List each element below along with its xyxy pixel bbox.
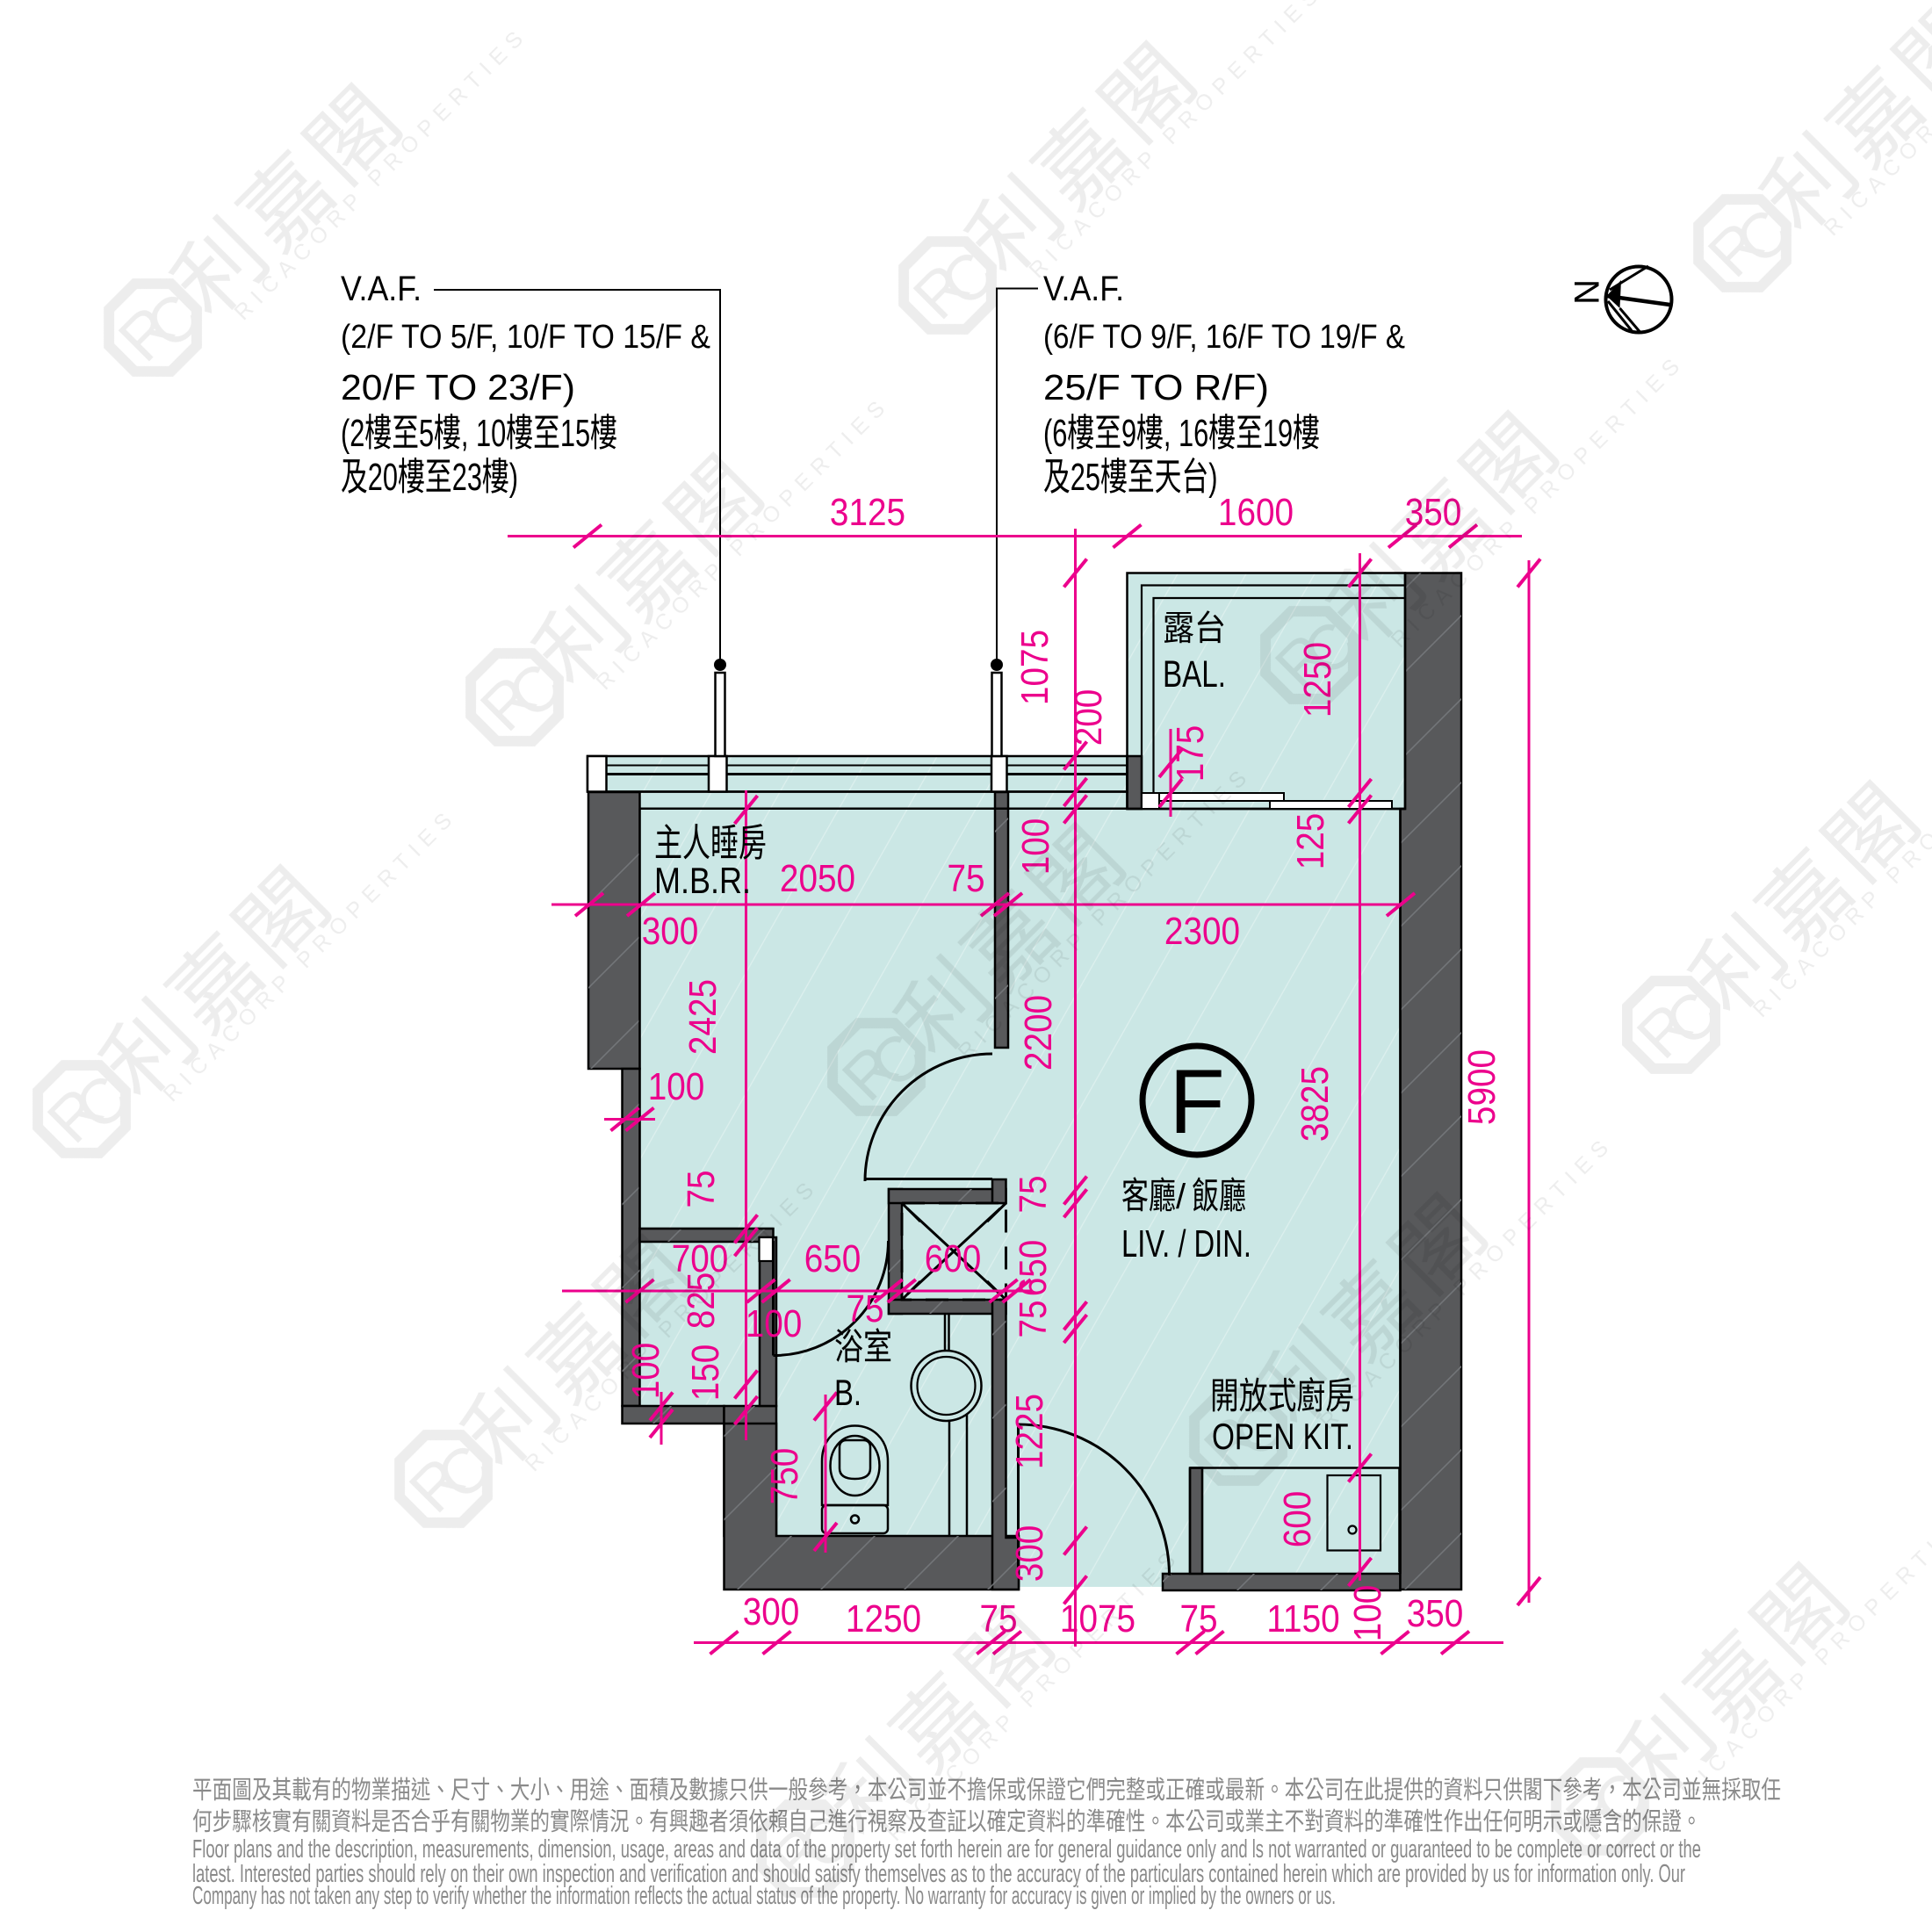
svg-text:, 16: , 16: [1164, 413, 1208, 456]
svg-text:100: 100: [746, 1301, 803, 1345]
svg-text:1225: 1225: [1007, 1394, 1051, 1469]
svg-text:3825: 3825: [1293, 1066, 1337, 1142]
svg-text:350: 350: [1407, 1591, 1464, 1635]
svg-text:100: 100: [648, 1064, 705, 1108]
svg-text:1150: 1150: [1266, 1597, 1339, 1640]
svg-text:F: F: [1169, 1051, 1225, 1153]
svg-text:20: 20: [368, 457, 398, 500]
svg-text:75: 75: [846, 1287, 883, 1330]
svg-text:175: 175: [1168, 725, 1212, 782]
svg-text:25/F TO R/F): 25/F TO R/F): [1043, 367, 1269, 407]
svg-text:1250: 1250: [846, 1597, 921, 1640]
svg-text:V.A.F.: V.A.F.: [341, 270, 422, 308]
svg-text:650: 650: [1011, 1240, 1055, 1297]
svg-text:1600: 1600: [1218, 490, 1294, 534]
svg-text:600: 600: [925, 1236, 982, 1280]
svg-text:2425: 2425: [681, 979, 724, 1055]
svg-text:650: 650: [804, 1236, 861, 1280]
svg-text:5900: 5900: [1460, 1049, 1503, 1125]
svg-text:/: /: [1176, 1178, 1186, 1216]
svg-text:300: 300: [743, 1590, 800, 1633]
svg-text:1075: 1075: [1013, 630, 1056, 705]
svg-text:75: 75: [679, 1170, 723, 1207]
svg-text:23: 23: [452, 457, 482, 500]
svg-text:150: 150: [683, 1344, 727, 1402]
svg-text:2300: 2300: [1164, 909, 1240, 953]
svg-text:300: 300: [642, 909, 699, 953]
svg-text:3125: 3125: [830, 490, 905, 534]
svg-text:2050: 2050: [780, 856, 855, 900]
svg-text:M.B.R.: M.B.R.: [654, 860, 751, 901]
svg-text:75: 75: [1011, 1300, 1055, 1337]
svg-text:(2/F TO 5/F, 10/F TO 15/F &: (2/F TO 5/F, 10/F TO 15/F &: [341, 319, 710, 356]
svg-text:): ): [1208, 457, 1217, 500]
svg-text:75: 75: [1011, 1175, 1055, 1213]
svg-text:20/F TO 23/F): 20/F TO 23/F): [341, 367, 575, 407]
svg-text:Company has not taken any step: Company has not taken any step to verify…: [192, 1882, 1336, 1910]
svg-text:300: 300: [1007, 1525, 1051, 1582]
svg-text:200: 200: [1066, 689, 1110, 746]
svg-text:75: 75: [947, 856, 984, 900]
svg-text:BAL.: BAL.: [1163, 653, 1226, 696]
svg-text:15: 15: [560, 413, 590, 456]
svg-text:600: 600: [1275, 1491, 1319, 1548]
svg-text:750: 750: [762, 1448, 806, 1505]
svg-text:5: 5: [419, 413, 434, 456]
svg-text:25: 25: [1071, 457, 1100, 500]
svg-text:19: 19: [1263, 413, 1293, 456]
svg-text:N: N: [1567, 279, 1605, 305]
svg-text:75: 75: [1179, 1597, 1217, 1640]
svg-text:100: 100: [1345, 1585, 1389, 1642]
svg-text:, 10: , 10: [461, 413, 506, 456]
svg-text:): ): [509, 457, 518, 500]
svg-text:(6/F TO 9/F, 16/F TO 19/F &: (6/F TO 9/F, 16/F TO 19/F &: [1043, 319, 1405, 356]
svg-text:125: 125: [1288, 813, 1332, 870]
svg-text:V.A.F.: V.A.F.: [1043, 270, 1124, 308]
svg-text:LIV. / DIN.: LIV. / DIN.: [1121, 1222, 1251, 1265]
svg-text:9: 9: [1121, 413, 1136, 456]
svg-text:(2: (2: [341, 413, 364, 456]
svg-text:B.: B.: [834, 1372, 861, 1413]
svg-text:(6: (6: [1043, 413, 1067, 456]
